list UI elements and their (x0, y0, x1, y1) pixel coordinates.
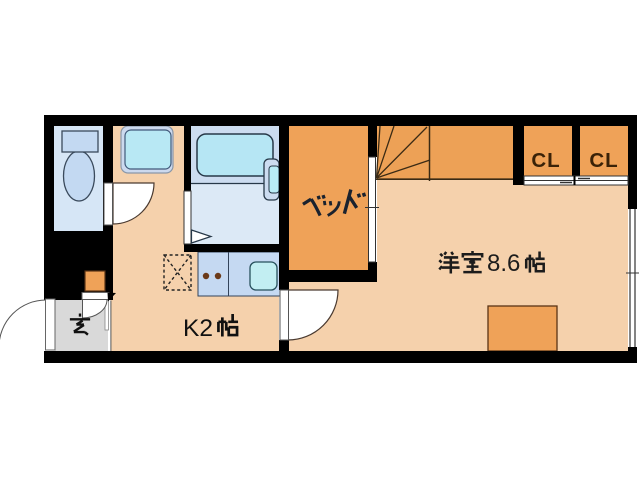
svg-text:8.6: 8.6 (487, 250, 520, 277)
svg-text:CL: CL (531, 149, 560, 172)
svg-text:CL: CL (589, 149, 618, 172)
svg-text:K2: K2 (183, 315, 213, 342)
